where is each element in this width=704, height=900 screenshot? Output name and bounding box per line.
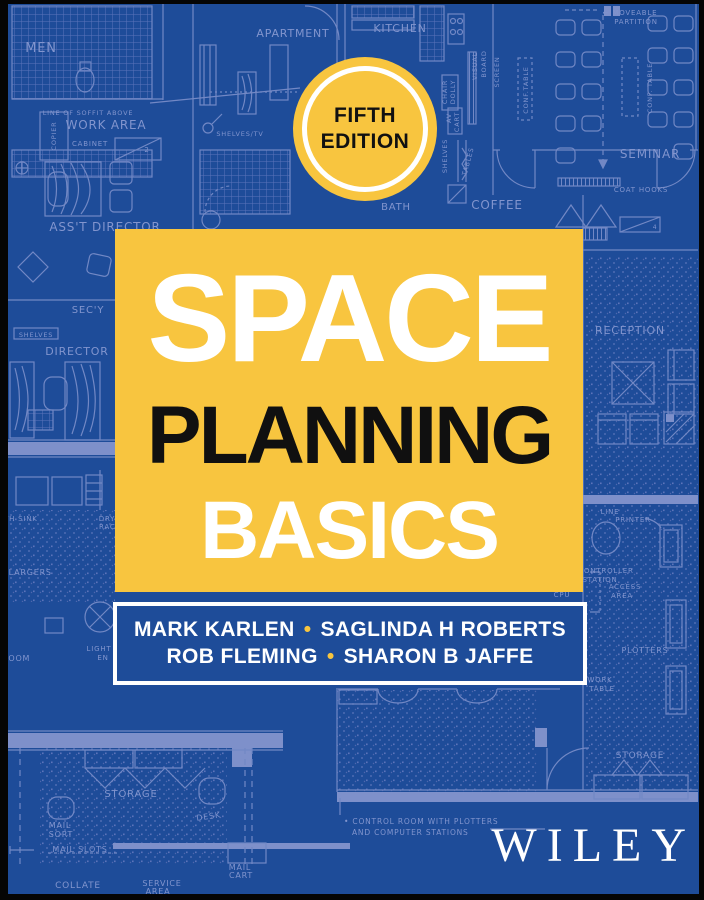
blueprint-label: CART xyxy=(229,871,253,880)
blueprint-label: CABINET xyxy=(72,140,108,148)
blueprint-label: PLOTTERS xyxy=(621,646,668,655)
blueprint-label: DOLLY xyxy=(449,80,457,104)
blueprint-label: LINE OF SOFFIT ABOVE xyxy=(43,109,134,117)
blueprint-label: LIGHT xyxy=(87,645,112,653)
author-name: ROB FLEMING xyxy=(166,645,317,668)
blueprint-label: ROOM xyxy=(2,654,30,663)
authors-line-2: ROB FLEMING•SHARON B JAFFE xyxy=(166,645,533,669)
blueprint-label: 4 xyxy=(653,224,658,231)
blueprint-label: 2 xyxy=(144,146,149,154)
blueprint-label: CPU xyxy=(554,591,571,599)
blueprint-label: COPIER xyxy=(50,122,58,151)
edition-badge-line2: EDITION xyxy=(321,129,410,155)
blueprint-label: AREA xyxy=(146,887,171,896)
blueprint-label: AND COMPUTER STATIONS xyxy=(352,828,469,837)
title-line-planning: PLANNING xyxy=(147,390,551,482)
author-name: SHARON B JAFFE xyxy=(344,645,534,668)
blueprint-label: DIRECTOR xyxy=(45,345,108,358)
blueprint-label: COFFEE xyxy=(471,198,523,212)
blueprint-label: BATH xyxy=(381,202,411,213)
authors-banner: MARK KARLEN•SAGLINDA H ROBERTS ROB FLEMI… xyxy=(113,602,587,685)
blueprint-label: BOARD xyxy=(480,50,488,77)
blueprint-label: SEC'Y xyxy=(72,305,105,316)
title-block: SPACE PLANNING BASICS xyxy=(115,229,583,592)
blueprint-label: CONTROLLER xyxy=(578,567,633,575)
blueprint-label: AREA xyxy=(611,592,633,600)
blueprint-label: SHELVES xyxy=(19,331,53,339)
blueprint-label: COAT HOOKS xyxy=(614,186,668,194)
edition-badge-inner-ring: FIFTH EDITION xyxy=(302,66,428,192)
blueprint-label: • CONTROL ROOM WITH PLOTTERS xyxy=(344,817,498,826)
blueprint-label: SCREEN xyxy=(493,56,501,87)
blueprint-label: WORK xyxy=(587,676,612,684)
blueprint-label: LINE xyxy=(601,508,620,516)
title-line-space: SPACE xyxy=(147,248,550,390)
author-name: MARK KARLEN xyxy=(134,618,295,641)
author-separator-dot: • xyxy=(327,645,335,668)
blueprint-label: SORT xyxy=(49,830,73,839)
blueprint-label: MEN xyxy=(25,41,57,56)
author-separator-dot: • xyxy=(304,618,312,641)
blueprint-label: SHELVES/TV xyxy=(216,130,263,138)
blueprint-label: AV xyxy=(445,113,453,123)
blueprint-label: RECEPTION xyxy=(595,324,665,337)
blueprint-label: ACCESS xyxy=(609,583,642,591)
blueprint-label: APARTMENT xyxy=(256,27,329,40)
authors-line-1: MARK KARLEN•SAGLINDA H ROBERTS xyxy=(134,618,566,642)
blueprint-label: WORK AREA xyxy=(66,118,147,132)
blueprint-label: ENLARGERS xyxy=(0,568,52,577)
blueprint-label: TH SINK xyxy=(3,515,38,523)
edition-badge-line1: FIFTH xyxy=(334,103,396,129)
book-cover: MENAPARTMENTKITCHEN← MOVEABLEPARTITIONVI… xyxy=(0,0,704,900)
blueprint-label: CHAIR xyxy=(441,80,449,104)
blueprint-label: STORAGE xyxy=(104,789,157,800)
title-line-basics: BASICS xyxy=(200,482,498,580)
author-name: SAGLINDA H ROBERTS xyxy=(320,618,566,641)
blueprint-label: TABLE xyxy=(588,685,615,693)
publisher-logo: WILEY xyxy=(491,818,696,873)
blueprint-label: TABLES xyxy=(460,146,476,177)
edition-badge: FIFTH EDITION xyxy=(293,57,437,201)
blueprint-label: KITCHEN xyxy=(373,22,426,35)
blueprint-label: DRY xyxy=(99,515,115,523)
blueprint-label: VISUAL xyxy=(471,52,479,80)
blueprint-label: MAIL xyxy=(49,821,71,830)
blueprint-label: ← MOVEABLE xyxy=(603,9,658,17)
blueprint-label: MAIL SLOTS xyxy=(52,845,107,854)
blueprint-label: CONF. TABLE xyxy=(646,63,654,113)
blueprint-label: COLLATE xyxy=(55,881,101,891)
blueprint-label: CART xyxy=(453,112,461,132)
blueprint-label: STORAGE xyxy=(616,751,664,761)
blueprint-label: EN xyxy=(97,654,108,662)
blueprint-label: SHELVES xyxy=(441,139,449,173)
blueprint-label: PRINTER xyxy=(615,516,651,524)
blueprint-label: CONF.TABLE xyxy=(522,66,530,113)
blueprint-label: SEMINAR xyxy=(620,147,680,161)
blueprint-label: PARTITION xyxy=(614,18,658,26)
